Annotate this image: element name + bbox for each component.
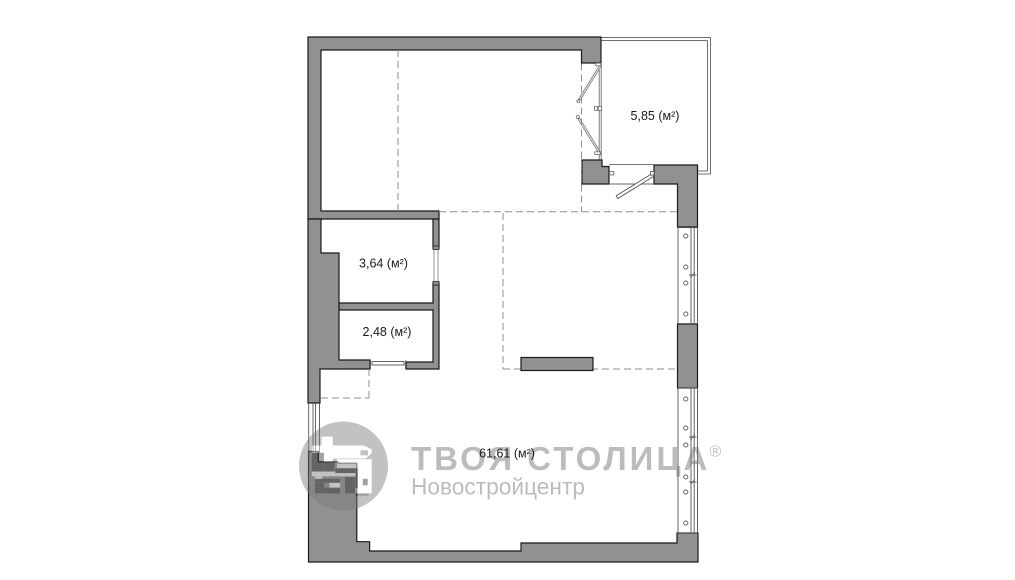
svg-text:5,85 (м²): 5,85 (м²) <box>631 109 680 123</box>
svg-text:61,61 (м²): 61,61 (м²) <box>479 447 535 461</box>
svg-text:ТВОЯ СТОЛИЦА: ТВОЯ СТОЛИЦА <box>411 440 710 477</box>
svg-text:2,48 (м²): 2,48 (м²) <box>363 325 412 339</box>
svg-text:®: ® <box>710 444 722 461</box>
svg-text:3,64 (м²): 3,64 (м²) <box>359 257 408 271</box>
svg-text:Новостройцентр: Новостройцентр <box>411 474 585 500</box>
